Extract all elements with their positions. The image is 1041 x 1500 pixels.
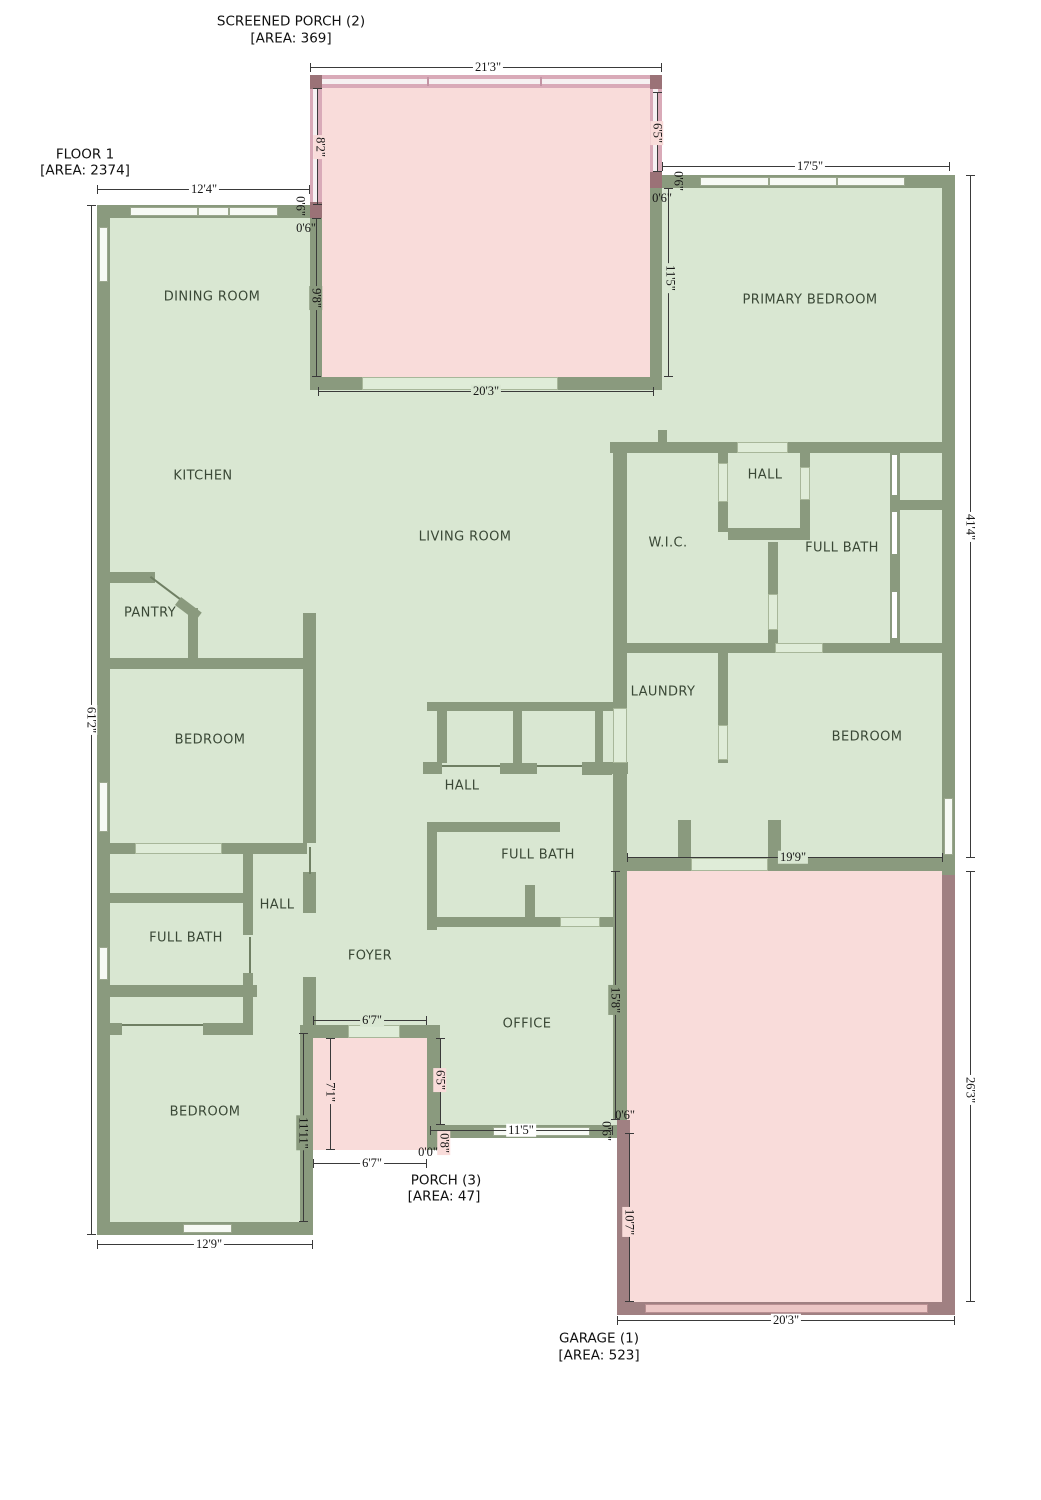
- window-divider: [197, 208, 199, 215]
- window: [700, 177, 905, 186]
- room-label-laundry: LAUNDRY: [631, 686, 696, 699]
- corner-post: [650, 75, 662, 89]
- room-label-foyer: FOYER: [348, 950, 392, 963]
- wall: [303, 613, 316, 843]
- porch-area: [AREA: 47]: [408, 1190, 481, 1204]
- dim-label: 12'4": [189, 183, 219, 196]
- dim-label: 15'8": [609, 985, 622, 1015]
- wall: [650, 188, 662, 377]
- room-label-living-room: LIVING ROOM: [419, 531, 512, 544]
- dim-label: 20'3": [471, 385, 501, 398]
- room-label-bedroom-right: BEDROOM: [832, 731, 903, 744]
- window-divider: [836, 178, 838, 185]
- room-label-full-bath-left: FULL BATH: [149, 932, 223, 945]
- window: [99, 782, 108, 832]
- room-label-pantry: PANTRY: [124, 607, 176, 620]
- wall: [525, 885, 535, 917]
- screened-porch-title: SCREENED PORCH (2): [217, 15, 365, 29]
- wall: [437, 710, 447, 763]
- wall: [728, 528, 810, 540]
- dim-label: 6'7": [360, 1014, 384, 1027]
- wall: [303, 977, 316, 1025]
- door-line: [309, 847, 311, 874]
- porch-title: PORCH (3): [411, 1174, 481, 1188]
- shower-door: [892, 455, 897, 495]
- dim-label: 9'8": [310, 286, 323, 310]
- door-opening: [775, 643, 823, 653]
- room-label-bedroom-bottom: BEDROOM: [170, 1106, 241, 1119]
- floor-area: [AREA: 2374]: [40, 164, 130, 178]
- garage-wall: [942, 875, 955, 1315]
- wall: [610, 762, 628, 774]
- door-opening: [691, 858, 768, 871]
- room-label-kitchen: KITCHEN: [173, 470, 232, 483]
- door-opening: [135, 843, 222, 854]
- dim-label: 6'5": [434, 1068, 447, 1092]
- wall: [942, 175, 955, 875]
- wall: [303, 872, 316, 913]
- dim-label: 12'9": [194, 1238, 224, 1251]
- wall: [890, 500, 942, 510]
- room-label-wic: W.I.C.: [648, 537, 687, 550]
- room-label-full-bath-upper: FULL BATH: [805, 542, 879, 555]
- room-label-hall-left: HALL: [260, 899, 295, 912]
- dim-label: 6'5": [651, 121, 664, 145]
- room-label-full-bath-center: FULL BATH: [501, 849, 575, 862]
- wall: [110, 985, 257, 997]
- wall: [595, 710, 603, 765]
- wall: [423, 762, 442, 774]
- dim-label: 61'2": [85, 705, 98, 735]
- closet-door-line: [537, 765, 582, 767]
- screen-divider: [540, 77, 542, 86]
- floor-title: FLOOR 1: [56, 148, 114, 162]
- dim-label: 11'11": [297, 1115, 310, 1150]
- room-label-office: OFFICE: [503, 1018, 552, 1031]
- door-opening: [718, 725, 728, 760]
- door-opening: [800, 467, 810, 500]
- wall: [110, 1023, 122, 1035]
- room-label-bedroom-left: BEDROOM: [175, 734, 246, 747]
- wall: [658, 430, 667, 445]
- dim-label: 21'3": [473, 61, 503, 74]
- floor-plan: 21'3" 8'2" 6'5" 0'6" 0'6" 9'8" 0'6" 0'6"…: [0, 0, 1041, 1500]
- garage-title: GARAGE (1): [559, 1332, 639, 1346]
- door-opening: [348, 1025, 400, 1038]
- door-opening: [560, 917, 600, 927]
- dim-label: 11'5": [506, 1124, 536, 1137]
- dim-label: 0'0": [416, 1146, 440, 1159]
- wall: [243, 845, 253, 935]
- garage-fill: [627, 871, 942, 1302]
- door-line: [249, 937, 251, 975]
- garage-door: [645, 1304, 928, 1313]
- screen-wall: [310, 75, 662, 88]
- wall: [500, 763, 537, 774]
- wall: [718, 502, 728, 532]
- room-label-hall-center: HALL: [445, 780, 480, 793]
- window-divider: [228, 208, 230, 215]
- dim-label: 41'4": [964, 512, 977, 542]
- door-opening: [768, 594, 778, 630]
- closet-door-line: [442, 765, 500, 767]
- door-line: [122, 1024, 203, 1026]
- wall: [582, 762, 612, 775]
- wall: [110, 572, 155, 583]
- dim-label: 0'6": [650, 192, 674, 205]
- room-label-dining-room: DINING ROOM: [164, 291, 260, 304]
- screened-porch-fill: [310, 88, 650, 377]
- wall: [188, 608, 198, 660]
- shower-door: [892, 512, 897, 554]
- dim-label: 10'7": [623, 1207, 636, 1237]
- corner-post: [310, 75, 322, 89]
- window: [183, 1224, 232, 1233]
- window: [99, 227, 108, 282]
- door-opening: [613, 708, 627, 763]
- wall: [110, 658, 310, 669]
- door-opening: [362, 377, 558, 390]
- wall: [718, 453, 728, 463]
- window: [944, 798, 953, 855]
- dim-label: 0'6": [600, 1119, 613, 1143]
- dim-label: 7'1": [324, 1080, 337, 1104]
- corner-post: [650, 172, 662, 188]
- screen-divider: [427, 77, 429, 86]
- wall: [427, 822, 437, 930]
- wall: [800, 453, 810, 467]
- dim-label: 0'6": [672, 169, 685, 193]
- shower-door: [892, 592, 897, 638]
- door-opening: [718, 463, 728, 502]
- dim-label: 11'5": [664, 263, 677, 293]
- wall: [513, 710, 522, 765]
- dim-label: 17'5": [795, 160, 825, 173]
- dim-label: 6'7": [360, 1157, 384, 1170]
- dim-label: 0'6": [613, 1109, 637, 1122]
- wall: [110, 893, 248, 903]
- screened-porch-area: [AREA: 369]: [250, 32, 331, 46]
- window-divider: [768, 178, 770, 185]
- wall: [203, 1023, 253, 1035]
- window: [130, 207, 278, 216]
- room-label-hall-upper: HALL: [748, 469, 783, 482]
- door-opening: [737, 442, 788, 453]
- room-label-primary-bedroom: PRIMARY BEDROOM: [743, 294, 878, 307]
- wall: [243, 973, 253, 1025]
- dim-label: 0'6": [294, 194, 307, 218]
- dim-label: 20'3": [771, 1314, 801, 1327]
- dim-label: 19'9": [778, 851, 808, 864]
- dim-label: 0'6": [294, 222, 318, 235]
- window: [99, 947, 108, 980]
- wall: [678, 820, 691, 858]
- floor-fill-left: [97, 205, 313, 1235]
- wall: [97, 205, 110, 1235]
- wall: [427, 822, 560, 832]
- dim-label: 8'2": [314, 135, 327, 159]
- dim-label: 26'3": [964, 1075, 977, 1105]
- garage-area: [AREA: 523]: [558, 1349, 639, 1363]
